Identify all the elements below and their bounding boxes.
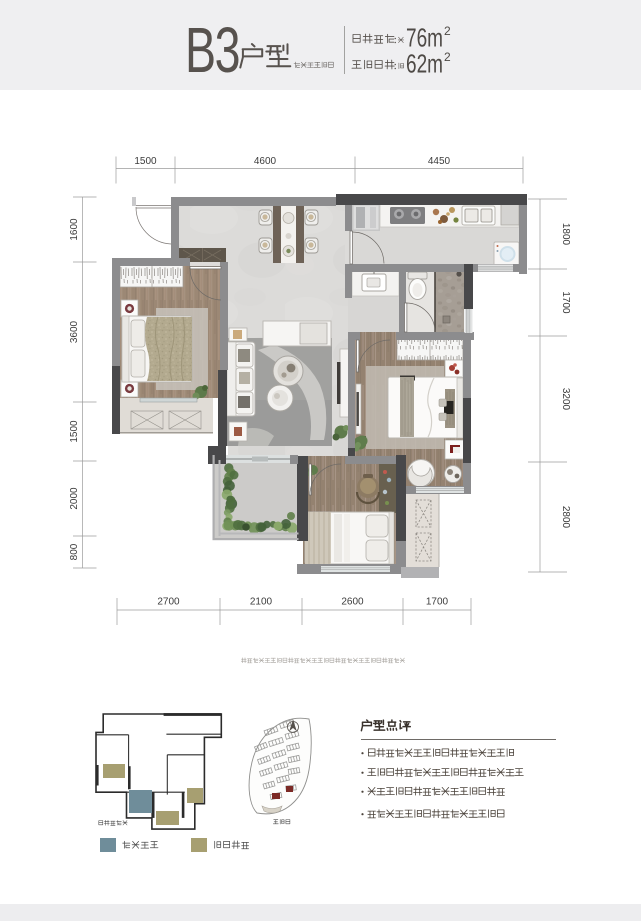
svg-text:4450: 4450 — [428, 156, 451, 167]
svg-text:B3: B3 — [185, 14, 239, 86]
svg-text:2000: 2000 — [69, 487, 80, 510]
svg-text:1500: 1500 — [134, 156, 157, 167]
svg-text:3600: 3600 — [69, 320, 80, 343]
svg-text:2100: 2100 — [250, 597, 273, 608]
svg-text:4600: 4600 — [254, 156, 277, 167]
svg-text:2800: 2800 — [560, 506, 571, 529]
svg-text:3200: 3200 — [560, 388, 571, 411]
svg-text:62m: 62m — [406, 49, 443, 79]
svg-text:1500: 1500 — [69, 420, 80, 443]
svg-text:800: 800 — [69, 543, 80, 560]
svg-text:2600: 2600 — [341, 597, 364, 608]
svg-text:2700: 2700 — [157, 597, 180, 608]
svg-text:2: 2 — [444, 24, 451, 38]
svg-text:1700: 1700 — [426, 597, 449, 608]
svg-text:1600: 1600 — [69, 218, 80, 241]
svg-text:2: 2 — [444, 50, 451, 64]
svg-text:1800: 1800 — [560, 223, 571, 246]
svg-text:1700: 1700 — [560, 291, 571, 314]
